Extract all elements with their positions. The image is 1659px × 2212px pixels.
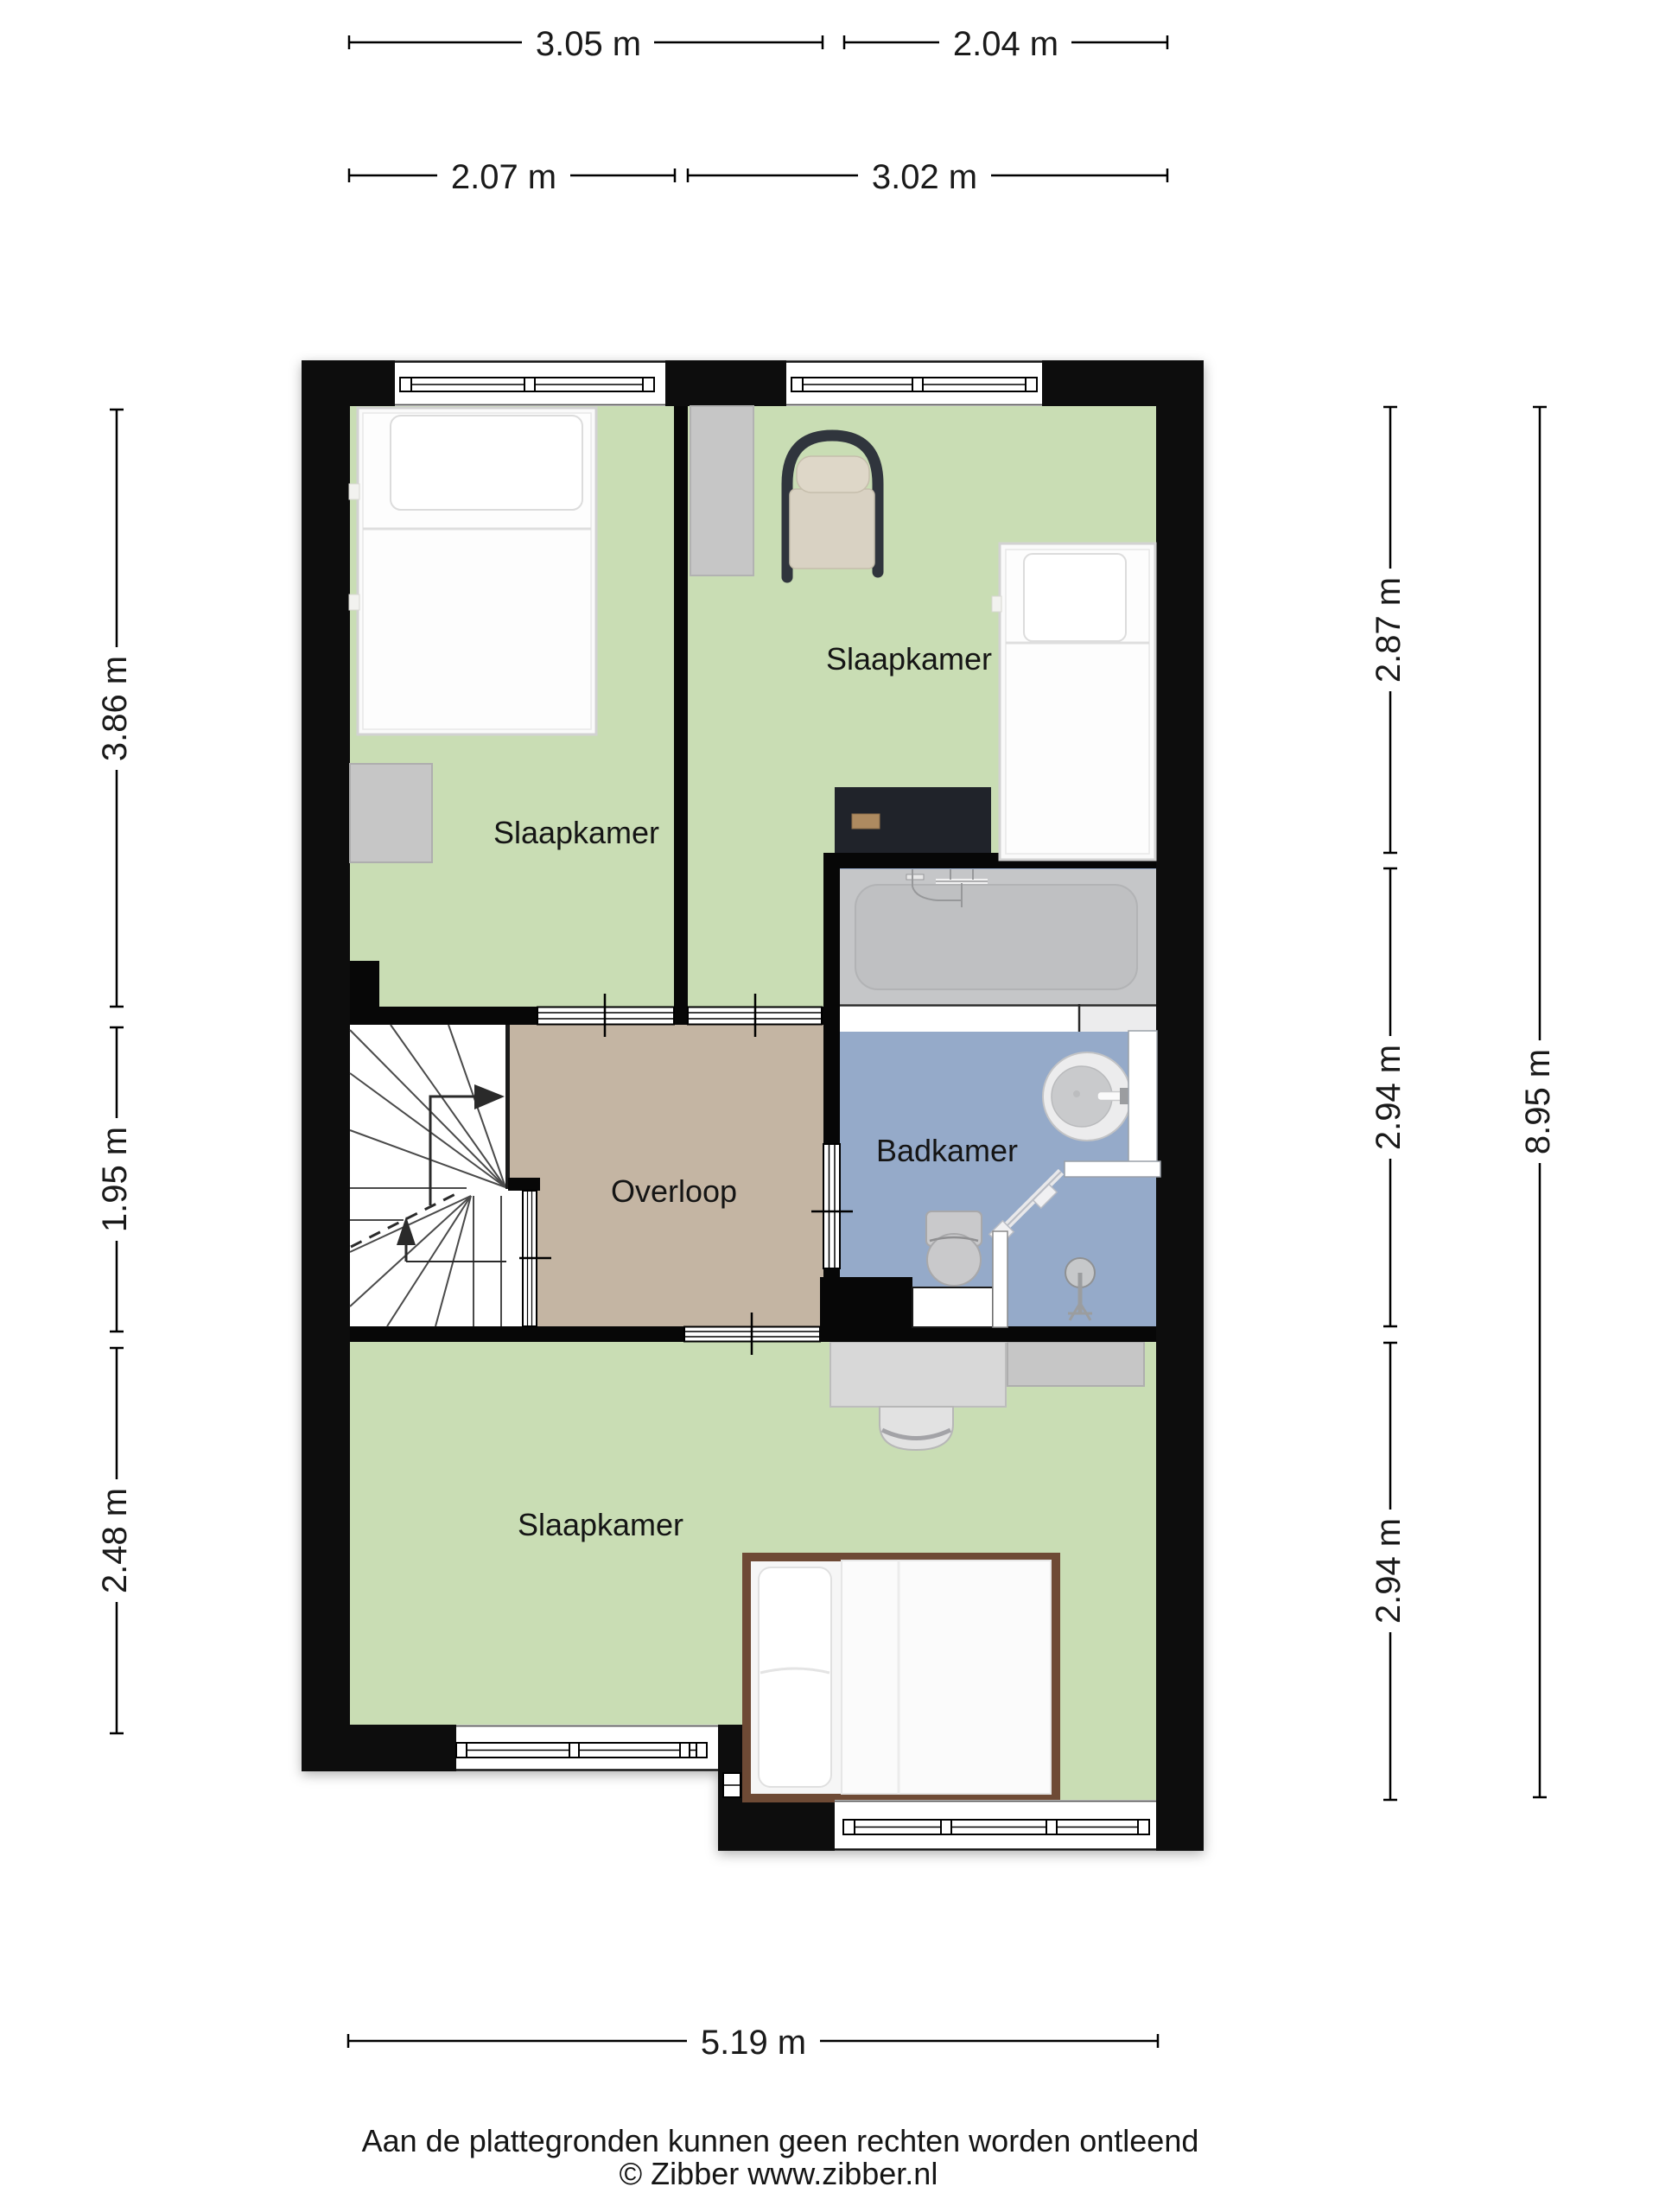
svg-text:2.07 m: 2.07 m	[451, 158, 556, 196]
svg-text:3.86 m: 3.86 m	[96, 656, 134, 761]
svg-text:Aan de plattegronden kunnen ge: Aan de plattegronden kunnen geen rechten…	[362, 2123, 1199, 2158]
svg-text:8.95 m: 8.95 m	[1519, 1049, 1557, 1154]
svg-text:1.95 m: 1.95 m	[96, 1127, 134, 1232]
svg-text:2.48 m: 2.48 m	[96, 1488, 134, 1593]
svg-text:Slaapkamer: Slaapkamer	[518, 1507, 683, 1542]
svg-text:3.02 m: 3.02 m	[872, 158, 977, 196]
svg-text:Slaapkamer: Slaapkamer	[493, 815, 659, 850]
svg-text:2.04 m: 2.04 m	[953, 25, 1058, 63]
svg-text:© Zibber www.zibber.nl: © Zibber www.zibber.nl	[620, 2156, 938, 2191]
svg-text:3.05 m: 3.05 m	[536, 25, 641, 63]
svg-text:Slaapkamer: Slaapkamer	[826, 641, 992, 677]
svg-text:Overloop: Overloop	[611, 1173, 737, 1209]
svg-text:5.19 m: 5.19 m	[701, 2024, 806, 2062]
svg-text:2.87 m: 2.87 m	[1370, 577, 1408, 683]
svg-text:2.94 m: 2.94 m	[1370, 1518, 1408, 1624]
svg-text:Badkamer: Badkamer	[876, 1133, 1018, 1168]
svg-text:2.94 m: 2.94 m	[1370, 1045, 1408, 1150]
